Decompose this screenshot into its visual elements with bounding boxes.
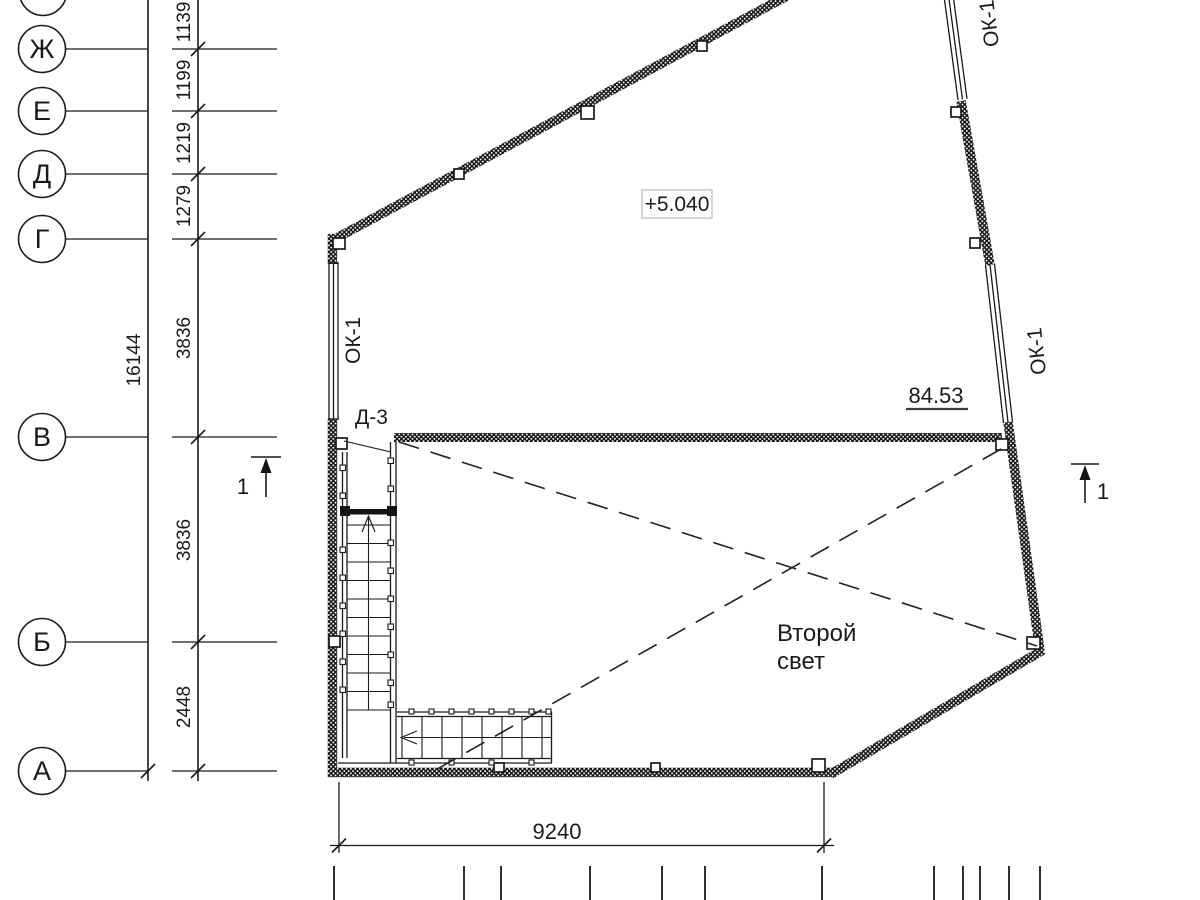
level-mark: +5.040 [642,190,712,218]
dim-total-16144: 16144 [124,333,145,386]
stair-walkline-arrow [401,731,551,744]
stair-lower-flight [338,709,552,765]
void-label: Второй свет [777,620,856,675]
post-marker [333,238,345,249]
axis-label: А [33,756,51,786]
post-marker [970,238,980,248]
post-marker [454,169,464,179]
window-left [328,263,339,419]
post-marker [651,763,660,772]
elevation-value: 84.53 [908,383,963,408]
post-marker [329,636,340,647]
floor-plan-sheet: Ж Е Д Г [0,0,1200,900]
dim-1219: 1219 [174,122,195,164]
wall-right-lower [1008,422,1040,651]
void-label-line1: Второй [777,620,856,647]
post-marker [494,763,504,772]
window-mark-left: ОК-1 [342,317,365,364]
post-marker [951,107,961,117]
void-cross [399,442,1037,772]
dim-3836-upper: 3836 [174,317,195,359]
door-post-marker [336,438,347,449]
dim-9240: 9240 [533,819,582,844]
plan-labels: ОК-1 ОК-1 ОК-1 Д-3 +5.040 84.53 Второй с… [342,0,1051,675]
bottom-dimension: 9240 [330,782,834,853]
wall-top-sloped [331,0,800,241]
staircase [338,441,552,765]
axis-label: Ж [30,34,55,64]
door-mark: Д-3 [355,406,388,429]
grid-axes: Ж Е Д Г [19,0,278,795]
void-label-line2: свет [777,648,825,675]
elevation-mark: 84.53 [906,383,968,409]
dim-3836-lower: 3836 [174,519,195,561]
post-marker [996,439,1008,450]
level-mark-value: +5.040 [645,193,710,216]
axis-label: Е [33,96,51,126]
post-marker [581,106,594,119]
section-arrow-icon [1080,465,1091,480]
section-number: 1 [1097,479,1109,504]
dim-2448: 2448 [174,686,195,728]
floor-plan-drawing: Ж Е Д Г [0,0,1200,900]
dim-1279: 1279 [174,185,195,227]
axis-label: Д [33,159,51,189]
window-right-top [944,0,967,100]
door-leaf [344,441,391,452]
window-right-mid [986,264,1013,423]
stair-up-arrow [362,516,375,710]
post-marker [697,41,707,51]
axis-bubble-cut [20,0,67,16]
stair-wall-studs [340,458,394,708]
dim-1199: 1199 [174,60,195,101]
void-diagonal-1 [399,442,1037,646]
section-mark-right: 1 [1071,464,1109,504]
section-number: 1 [237,474,249,499]
axis-label: Г [35,224,50,254]
post-marker [812,759,825,772]
wall-bottom-right-angled [831,650,1043,774]
section-mark-left: 1 [237,457,281,499]
axis-label: Б [33,627,51,657]
dim-1139: 1139 [174,2,195,43]
window-mark-right: ОК-1 [1023,326,1051,375]
bottom-extension-ticks [334,866,1040,900]
section-arrow-icon [261,458,272,473]
axis-label: В [33,422,51,452]
window-mark-top-right: ОК-1 [975,0,1004,48]
